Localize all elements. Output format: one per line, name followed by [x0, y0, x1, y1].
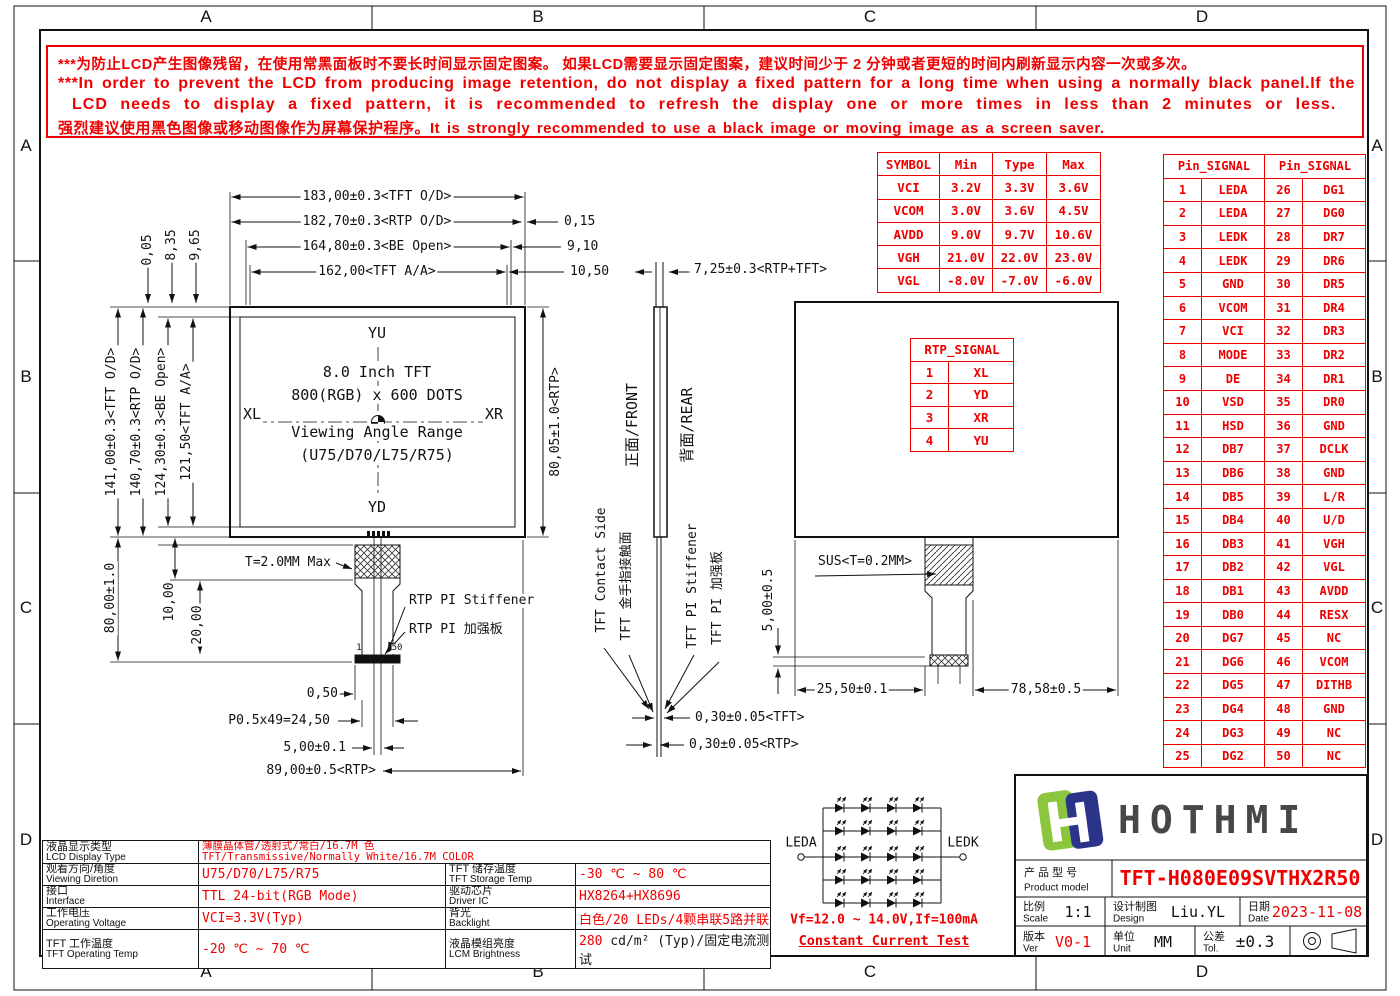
symbol-typ: 3.3V: [993, 176, 1047, 199]
pin-row: 5 GND 30 DR5: [1164, 272, 1366, 296]
rtp-pin-signal: XL: [949, 361, 1014, 384]
dim-005: 0,05: [141, 232, 155, 267]
symbol-min: 3.0V: [940, 199, 993, 222]
rtp-pin-signal: YU: [949, 429, 1014, 452]
spec-label-zh: TFT 工作温度: [46, 939, 198, 950]
spec-label-en: Backlight: [449, 919, 575, 929]
symbol-typ: -7.0V: [993, 269, 1047, 292]
pin-number: 29: [1265, 249, 1303, 273]
zone-label-top-c: C: [864, 7, 876, 27]
pin-number: 1: [1164, 178, 1202, 202]
version-label-zh: 版本: [1021, 928, 1047, 944]
spec-label-en: TFT Operating Temp: [46, 950, 198, 960]
pin-signal: DB2: [1202, 556, 1265, 580]
pin-number: 41: [1265, 532, 1303, 556]
pin-signal: NC: [1303, 626, 1366, 650]
projection-symbol: [1304, 929, 1357, 953]
pin-row: 20 DG7 45 NC: [1164, 626, 1366, 650]
pin-row: 2 LEDA 27 DG0: [1164, 202, 1366, 226]
dim-be-open-height: 124,30±0.3<BE Open>: [155, 346, 169, 499]
pin-signal: DG2: [1202, 744, 1265, 768]
pin-number: 36: [1265, 414, 1303, 438]
pin-row: 15 DB4 40 U/D: [1164, 508, 1366, 532]
interface-value: TTL 24-bit(RGB Mode): [199, 886, 446, 908]
pin-number: 22: [1164, 674, 1202, 698]
symbol-typ: 22.0V: [993, 246, 1047, 269]
pin-signal: DR5: [1303, 272, 1366, 296]
tolerance-label-zh: 公差: [1201, 928, 1227, 944]
date-label-zh: 日期: [1246, 898, 1272, 914]
dim-tft-od-width: 183,00±0.3<TFT O/D>: [301, 190, 454, 204]
pin-signal: NC: [1303, 744, 1366, 768]
pin-row: 18 DB1 43 AVDD: [1164, 579, 1366, 603]
pin-header-left: Pin_SIGNAL: [1164, 155, 1265, 179]
pin-number: 44: [1265, 603, 1303, 627]
pin-number: 21: [1164, 650, 1202, 674]
pin-signal: DB5: [1202, 485, 1265, 509]
pin-number: 47: [1265, 674, 1303, 698]
pin-number: 25: [1164, 744, 1202, 768]
constant-current-test-label: Constant Current Test: [797, 933, 972, 949]
spec-label: 观看方向/角度 Viewing Diretion: [43, 864, 199, 886]
dim-20: 20,00: [191, 603, 205, 646]
zone-label-left-a: A: [20, 136, 31, 156]
zone-label-right-c: C: [1371, 598, 1383, 618]
symbol-max: 10.6V: [1047, 222, 1101, 245]
tolerance-label-en: Tol.: [1201, 944, 1221, 955]
symbol-col-header: SYMBOL: [878, 153, 940, 176]
pin-number: 9: [1164, 367, 1202, 391]
pin-signal: LEDA: [1202, 202, 1265, 226]
pin-signal: DB0: [1202, 603, 1265, 627]
spec-value-display-type: 薄膜晶体管/透射式/常白/16.7M 色 TFT/Transmissive/No…: [199, 841, 771, 864]
spec-label-en: LCM Brightness: [449, 950, 575, 960]
pin-number: 33: [1265, 343, 1303, 367]
symbol-row: VCOM 3.0V 3.6V 4.5V: [878, 199, 1101, 222]
pin-number: 28: [1265, 225, 1303, 249]
spec-label: 液晶显示类型 LCD Display Type: [43, 841, 199, 864]
pin-number: 18: [1164, 579, 1202, 603]
viewing-direction-value: U75/D70/L75/R75: [199, 864, 446, 886]
pin-row: 12 DB7 37 DCLK: [1164, 438, 1366, 462]
symbol-header-row: SYMBOL Min Type Max: [878, 153, 1101, 176]
symbol-row: VCI 3.2V 3.3V 3.6V: [878, 176, 1101, 199]
rtp-row: 1 XL: [911, 361, 1014, 384]
pin-signal: VCOM: [1202, 296, 1265, 320]
pin-signal: DR7: [1303, 225, 1366, 249]
pin-signal: DG5: [1202, 674, 1265, 698]
dim-be-open-width: 164,80±0.3<BE Open>: [301, 240, 454, 254]
pin-signal: DR1: [1303, 367, 1366, 391]
dim-030-tft: 0,30±0.05<TFT>: [693, 711, 807, 725]
scale-value: 1:1: [1062, 904, 1093, 921]
fpc-pin50-label: 50: [392, 644, 403, 654]
warning-line-en-1: ***In order to prevent the LCD from prod…: [58, 75, 1355, 93]
rtp-pin-number: 2: [911, 384, 949, 407]
pin-signal: VSD: [1202, 390, 1265, 414]
pin-number: 5: [1164, 272, 1202, 296]
symbol-min: 21.0V: [940, 246, 993, 269]
symbol-name: VCI: [878, 176, 940, 199]
rear-face-label: 背面/REAR: [679, 385, 696, 464]
pin-number: 34: [1265, 367, 1303, 391]
dim-835: 8,35: [165, 227, 179, 262]
tft-stiffener-zh: TFT PI 加强板: [711, 549, 725, 647]
symbol-name: VGH: [878, 246, 940, 269]
symbol-min: 9.0V: [940, 222, 993, 245]
pin-number: 26: [1265, 178, 1303, 202]
hothmi-logo-icon: [1036, 786, 1104, 854]
dim-stack-thickness: 7,25±0.3<RTP+TFT>: [692, 263, 829, 277]
pin-number: 11: [1164, 414, 1202, 438]
pin-signal: DE: [1202, 367, 1265, 391]
pin-signal: HSD: [1202, 414, 1265, 438]
tolerance-value: ±0.3: [1234, 933, 1277, 951]
lcd-spec-table: 液晶显示类型 LCD Display Type 薄膜晶体管/透射式/常白/16.…: [42, 840, 771, 969]
pin-number: 45: [1265, 626, 1303, 650]
dim-89-rtp: 89,00±0.5<RTP>: [264, 764, 378, 778]
touch-label-yu: YU: [366, 325, 388, 342]
spec-label-en: Interface: [46, 897, 198, 907]
spec-row-interface: 接口 Interface TTL 24-bit(RGB Mode) 驱动芯片 D…: [43, 886, 771, 908]
pin-number: 37: [1265, 438, 1303, 462]
rtp-pin-signal: YD: [949, 384, 1014, 407]
dim-tft-aa-width: 162,00<TFT A/A>: [316, 265, 437, 279]
pin-signal: LEDA: [1202, 178, 1265, 202]
spec-row-display-type: 液晶显示类型 LCD Display Type 薄膜晶体管/透射式/常白/16.…: [43, 841, 771, 864]
spec-label: 接口 Interface: [43, 886, 199, 908]
dim-2550: 25,50±0.1: [815, 683, 889, 697]
pin-signal: GND: [1303, 697, 1366, 721]
product-model-label-zh: 产 品 型 号: [1022, 864, 1079, 880]
led-vf-spec: Vf=12.0 ~ 14.0V,If=100mA: [788, 913, 980, 928]
spec-label-en: LCD Display Type: [46, 853, 198, 863]
unit-label-en: Unit: [1111, 944, 1133, 955]
dim-500-05: 5,00±0.5: [762, 567, 776, 634]
pin-signal: U/D: [1303, 508, 1366, 532]
pin-row: 14 DB5 39 L/R: [1164, 485, 1366, 509]
pin-number: 20: [1164, 626, 1202, 650]
pin-number: 23: [1164, 697, 1202, 721]
spec-label: TFT 储存温度 TFT Storage Temp: [446, 864, 576, 886]
symbol-name: AVDD: [878, 222, 940, 245]
dim-rtp-od-height: 140,70±0.3<RTP O/D>: [130, 346, 144, 499]
pin-signal: LEDK: [1202, 225, 1265, 249]
viewing-angle-text: Viewing Angle Range: [289, 424, 465, 441]
pin-number: 35: [1265, 390, 1303, 414]
pin-number: 17: [1164, 556, 1202, 580]
dim-500-01: 5,00±0.1: [281, 741, 348, 755]
symbol-name: VCOM: [878, 199, 940, 222]
pin-row: 7 VCI 32 DR3: [1164, 320, 1366, 344]
pin-signal: DR6: [1303, 249, 1366, 273]
pin-signal: GND: [1303, 461, 1366, 485]
led-circuit-linework: [798, 797, 966, 908]
brightness-number: 280: [579, 934, 602, 949]
rtp-signal-table: RTP_SIGNAL 1 XL 2 YD 3 XR 4 YU: [910, 338, 1014, 452]
dim-7858: 78,58±0.5: [1009, 683, 1083, 697]
design-value: Liu.YL: [1169, 904, 1227, 921]
pin-number: 13: [1164, 461, 1202, 485]
storage-temp-value: -30 ℃ ~ 80 ℃: [576, 864, 771, 886]
pin-number: 30: [1265, 272, 1303, 296]
pin-signal: DG0: [1303, 202, 1366, 226]
dim-rtp-height: 80,05±1.0<RTP>: [549, 365, 563, 479]
front-face-label: 正面/FRONT: [624, 381, 641, 469]
pin-row: 16 DB3 41 VGH: [1164, 532, 1366, 556]
pin-row: 8 MODE 33 DR2: [1164, 343, 1366, 367]
pin-signal: NC: [1303, 721, 1366, 745]
pin-number: 50: [1265, 744, 1303, 768]
panel-resolution-text: 800(RGB) x 600 DOTS: [289, 387, 465, 404]
symbol-max: -6.0V: [1047, 269, 1101, 292]
pin-signal: DCLK: [1303, 438, 1366, 462]
rtp-stiffener-label-zh: RTP PI 加强板: [407, 623, 505, 637]
zone-label-top-d: D: [1196, 7, 1208, 27]
pin-row: 9 DE 34 DR1: [1164, 367, 1366, 391]
rtp-pin-number: 4: [911, 429, 949, 452]
pin-number: 39: [1265, 485, 1303, 509]
pin-number: 24: [1164, 721, 1202, 745]
pin-number: 10: [1164, 390, 1202, 414]
spec-label-en: Driver IC: [449, 897, 575, 907]
spec-label-zh: 液晶模组亮度: [449, 939, 575, 950]
unit-label-zh: 单位: [1111, 928, 1137, 944]
thickness-max-label: T=2.0MM Max: [243, 556, 333, 570]
symbol-min: -8.0V: [940, 269, 993, 292]
symbol-min: 3.2V: [940, 176, 993, 199]
design-label-zh: 设计制图: [1111, 898, 1159, 914]
pin-signal: LEDK: [1202, 249, 1265, 273]
pin-signal: DR2: [1303, 343, 1366, 367]
pin-number: 27: [1265, 202, 1303, 226]
pin-number: 48: [1265, 697, 1303, 721]
led-anode-label: LEDA: [783, 836, 818, 851]
symbol-name: VGL: [878, 269, 940, 292]
pin-signal: DB3: [1202, 532, 1265, 556]
spec-label: 背光 Backlight: [446, 908, 576, 930]
warning-line-zh: ***为防止LCD产生图像残留，在使用常黑面板时不要长时间显示固定图案。 如果L…: [58, 53, 1196, 74]
pin-number: 3: [1164, 225, 1202, 249]
dim-10: 10,00: [163, 580, 177, 623]
pin-number: 2: [1164, 202, 1202, 226]
zone-label-right-a: A: [1371, 136, 1382, 156]
spec-row-viewing: 观看方向/角度 Viewing Diretion U75/D70/L75/R75…: [43, 864, 771, 886]
pin-row: 13 DB6 38 GND: [1164, 461, 1366, 485]
brightness-value: 280 cd/m² (Typ)/固定电流测试: [576, 930, 771, 969]
pin-signal: DR0: [1303, 390, 1366, 414]
zone-label-left-b: B: [20, 367, 31, 387]
version-label-en: Ver: [1021, 944, 1040, 955]
symbol-typ: 3.6V: [993, 199, 1047, 222]
pin-number: 19: [1164, 603, 1202, 627]
pin-number: 15: [1164, 508, 1202, 532]
tft-stiffener-en: TFT PI Stiffener: [686, 521, 700, 650]
pin-number: 4: [1164, 249, 1202, 273]
driver-ic-value: HX8264+HX8696: [576, 886, 771, 908]
dim-tft-od-height: 141,00±0.3<TFT O/D>: [105, 346, 119, 499]
pin-number: 46: [1265, 650, 1303, 674]
pin-signal: VGL: [1303, 556, 1366, 580]
pin-header-right: Pin_SIGNAL: [1265, 155, 1366, 179]
viewing-angle-values: (U75/D70/L75/R75): [298, 447, 456, 464]
operating-temp-value: -20 ℃ ~ 70 ℃: [199, 930, 446, 969]
spec-label-zh: 液晶显示类型: [46, 842, 198, 853]
symbol-typ: 9.7V: [993, 222, 1047, 245]
pin-row: 24 DG3 49 NC: [1164, 721, 1366, 745]
date-value: 2023-11-08: [1270, 904, 1364, 921]
touch-label-xr: XR: [483, 406, 505, 423]
rtp-row: 4 YU: [911, 429, 1014, 452]
pin-signal-table: Pin_SIGNAL Pin_SIGNAL 1 LEDA 26 DG1 2 LE…: [1163, 154, 1366, 768]
dim-015: 0,15: [562, 215, 597, 229]
spec-label-en: Viewing Diretion: [46, 875, 198, 885]
zone-label-right-d: D: [1371, 830, 1383, 850]
pin-number: 38: [1265, 461, 1303, 485]
rtp-row: 3 XR: [911, 406, 1014, 429]
pin-signal: DITHB: [1303, 674, 1366, 698]
type-col-header: Type: [993, 153, 1047, 176]
pin-row: 17 DB2 42 VGL: [1164, 556, 1366, 580]
zone-label-top-a: A: [200, 7, 211, 27]
pin-signal: DB1: [1202, 579, 1265, 603]
pin-number: 7: [1164, 320, 1202, 344]
rtp-header-row: RTP_SIGNAL: [911, 339, 1014, 362]
dim-050: 0,50: [305, 687, 340, 701]
spec-label: 工作电压 Operating Voltage: [43, 908, 199, 930]
pin-row: 4 LEDK 29 DR6: [1164, 249, 1366, 273]
zone-label-top-b: B: [532, 7, 543, 27]
dim-030-rtp: 0,30±0.05<RTP>: [687, 738, 801, 752]
dim-965: 9,65: [189, 227, 203, 262]
zone-label-bottom-d: D: [1196, 962, 1208, 982]
pin-signal: VGH: [1303, 532, 1366, 556]
tft-contact-side-zh: TFT 金手指接触面: [620, 529, 634, 642]
brightness-unit: cd/m² (Typ)/固定电流测试: [579, 934, 769, 968]
pin-number: 16: [1164, 532, 1202, 556]
rtp-header: RTP_SIGNAL: [911, 339, 1014, 362]
rtp-pin-number: 3: [911, 406, 949, 429]
product-model-value: TFT-H080E09SVTHX2R50: [1118, 866, 1363, 890]
symbol-row: AVDD 9.0V 9.7V 10.6V: [878, 222, 1101, 245]
dim-1050: 10,50: [568, 265, 611, 279]
spec-label: 驱动芯片 Driver IC: [446, 886, 576, 908]
panel-size-text: 8.0 Inch TFT: [321, 364, 433, 381]
pin-number: 42: [1265, 556, 1303, 580]
operating-voltage-value: VCI=3.3V(Typ): [199, 908, 446, 930]
pin-row: 25 DG2 50 NC: [1164, 744, 1366, 768]
spec-label: 液晶模组亮度 LCM Brightness: [446, 930, 576, 969]
pin-row: 10 VSD 35 DR0: [1164, 390, 1366, 414]
pin-number: 43: [1265, 579, 1303, 603]
pin-number: 49: [1265, 721, 1303, 745]
pin-signal: L/R: [1303, 485, 1366, 509]
image-retention-warning: ***为防止LCD产生图像残留，在使用常黑面板时不要长时间显示固定图案。 如果L…: [46, 45, 1364, 138]
spec-row-temp: TFT 工作温度 TFT Operating Temp -20 ℃ ~ 70 ℃…: [43, 930, 771, 969]
unit-value: MM: [1152, 934, 1174, 951]
pin-number: 12: [1164, 438, 1202, 462]
max-col-header: Max: [1047, 153, 1101, 176]
rtp-pin-number: 1: [911, 361, 949, 384]
scale-label-zh: 比例: [1021, 898, 1047, 914]
pin-number: 14: [1164, 485, 1202, 509]
pin-row: 22 DG5 47 DITHB: [1164, 674, 1366, 698]
warning-line-en-2: LCD needs to display a fixed pattern, it…: [72, 96, 1336, 114]
backlight-value: 白色/20 LEDs/4颗串联5路并联: [576, 908, 771, 930]
voltage-symbol-table: SYMBOL Min Type Max VCI 3.2V 3.3V 3.6V V…: [877, 152, 1101, 293]
pin-signal: DG4: [1202, 697, 1265, 721]
pin-row: 6 VCOM 31 DR4: [1164, 296, 1366, 320]
pin-signal: DG7: [1202, 626, 1265, 650]
pin-signal: DB6: [1202, 461, 1265, 485]
pin-signal: DB4: [1202, 508, 1265, 532]
symbol-row: VGH 21.0V 22.0V 23.0V: [878, 246, 1101, 269]
pin-number: 31: [1265, 296, 1303, 320]
pin-row: 21 DG6 46 VCOM: [1164, 650, 1366, 674]
pin-signal: DB7: [1202, 438, 1265, 462]
dim-80: 80,00±1.0: [104, 561, 118, 635]
pin-signal: DR3: [1303, 320, 1366, 344]
dim-tft-aa-height: 121,50<TFT A/A>: [180, 361, 194, 482]
pin-signal: AVDD: [1303, 579, 1366, 603]
warning-line-mixed: 强烈建议使用黑色图像或移动图像作为屏幕保护程序。It is strongly r…: [58, 117, 1105, 138]
dim-910: 9,10: [565, 240, 600, 254]
version-value: V0-1: [1053, 934, 1093, 951]
pin-signal: DG6: [1202, 650, 1265, 674]
pin-number: 6: [1164, 296, 1202, 320]
symbol-row: VGL -8.0V -7.0V -6.0V: [878, 269, 1101, 292]
zone-label-bottom-c: C: [864, 962, 876, 982]
fpc-pin1-label: 1: [356, 644, 361, 654]
pin-signal: RESX: [1303, 603, 1366, 627]
date-label-en: Date: [1246, 914, 1271, 925]
pin-row: 1 LEDA 26 DG1: [1164, 178, 1366, 202]
display-type-en: TFT/Transmissive/Normally White/16.7M CO…: [202, 852, 770, 863]
dim-pitch: P0.5x49=24,50: [226, 714, 332, 728]
pin-number: 40: [1265, 508, 1303, 532]
pin-signal: VCI: [1202, 320, 1265, 344]
spec-label-en: TFT Storage Temp: [449, 875, 575, 885]
pin-signal: GND: [1202, 272, 1265, 296]
spec-label-en: Operating Voltage: [46, 919, 198, 929]
pin-signal: DG3: [1202, 721, 1265, 745]
spec-label: TFT 工作温度 TFT Operating Temp: [43, 930, 199, 969]
symbol-max: 23.0V: [1047, 246, 1101, 269]
zone-label-left-d: D: [20, 830, 32, 850]
spec-row-voltage: 工作电压 Operating Voltage VCI=3.3V(Typ) 背光 …: [43, 908, 771, 930]
led-cathode-label: LEDK: [945, 836, 980, 851]
symbol-max: 3.6V: [1047, 176, 1101, 199]
touch-label-yd: YD: [366, 499, 388, 516]
pin-number: 32: [1265, 320, 1303, 344]
pin-number: 8: [1164, 343, 1202, 367]
sus-plate-label: SUS<T=0.2MM>: [816, 555, 914, 569]
scale-label-en: Scale: [1021, 914, 1050, 925]
design-label-en: Design: [1111, 914, 1146, 925]
pin-row: 11 HSD 36 GND: [1164, 414, 1366, 438]
tft-contact-side-en: TFT Contact Side: [595, 505, 609, 634]
pin-row: 23 DG4 48 GND: [1164, 697, 1366, 721]
rtp-row: 2 YD: [911, 384, 1014, 407]
pin-signal: DG1: [1303, 178, 1366, 202]
min-col-header: Min: [940, 153, 993, 176]
zone-label-left-c: C: [20, 598, 32, 618]
pin-signal: MODE: [1202, 343, 1265, 367]
symbol-max: 4.5V: [1047, 199, 1101, 222]
rtp-pin-signal: XR: [949, 406, 1014, 429]
pin-signal: GND: [1303, 414, 1366, 438]
side-view-linework: [604, 262, 719, 757]
